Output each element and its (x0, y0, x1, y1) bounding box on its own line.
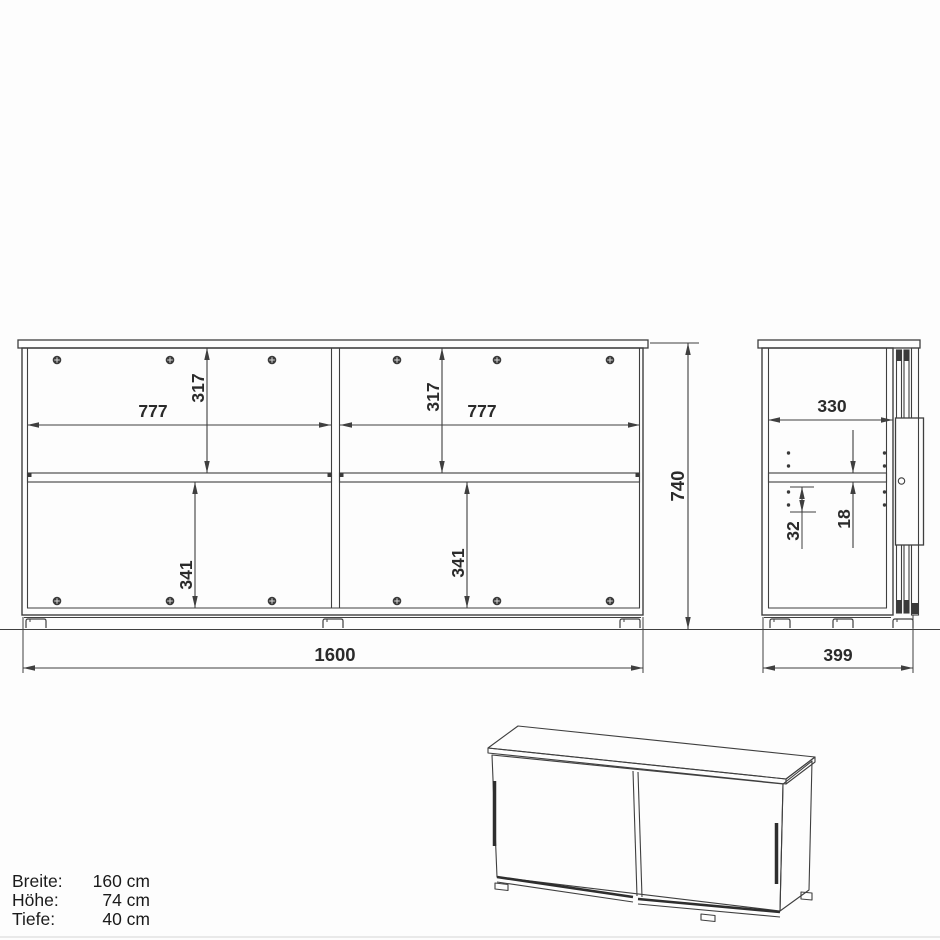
front-view (18, 340, 648, 628)
front-top-panel (18, 340, 648, 348)
screw-head-icon (393, 597, 402, 606)
door-overlap-edge (638, 772, 642, 897)
screw-head-icon (493, 356, 502, 365)
dimension-label-hole-pitch: 32 (783, 521, 803, 541)
screw-head-icon (606, 597, 615, 606)
foot-glide (620, 619, 640, 628)
top-panel-front-edge (488, 748, 786, 784)
spec-row-width: Breite: 160 cm (12, 872, 150, 891)
foot-glide (495, 883, 508, 891)
spec-row-height: Höhe: 74 cm (12, 891, 150, 910)
door-track-top (904, 350, 909, 361)
side-view (758, 340, 924, 628)
dimension-label-shelf-thickness: 18 (834, 509, 854, 529)
dimension-label-overall-height: 740 (667, 471, 688, 502)
screw-head-icon (53, 356, 62, 365)
spec-value: 74 cm (86, 891, 150, 910)
shelf-connector (340, 473, 344, 477)
front-shelf-left (28, 473, 332, 482)
dimension-label-lower-height-right: 341 (448, 548, 468, 577)
screw-head-icon (53, 597, 62, 606)
spec-label: Höhe: (12, 891, 86, 910)
dimension-label-upper-height-right: 317 (423, 382, 443, 411)
dimension-label-inner-depth: 330 (817, 396, 846, 416)
spec-label: Breite: (12, 872, 86, 891)
spec-label: Tiefe: (12, 910, 86, 929)
dimension-label-inner-width-right: 777 (467, 401, 496, 421)
dimension-label-inner-width-left: 777 (138, 401, 167, 421)
screw-head-icon (166, 597, 175, 606)
door-track-bottom (897, 600, 902, 613)
foot-glide (833, 619, 853, 628)
dimension-label-lower-height-left: 341 (176, 560, 196, 589)
door-track-bottom (912, 603, 919, 614)
dimension-label-upper-height-left: 317 (188, 373, 208, 402)
screw-head-icon (493, 597, 502, 606)
perspective-view (488, 726, 815, 922)
foot-glide (323, 619, 343, 628)
shelf-connector (636, 473, 640, 477)
page-divider-line (0, 936, 940, 938)
dimension-label-overall-depth: 399 (823, 645, 852, 665)
front-shelf-right (340, 473, 640, 482)
technical-drawing-canvas: 777 777 317 317 341 341 1600 740 330 32 (0, 0, 940, 940)
drawing-svg: 777 777 317 317 341 341 1600 740 330 32 (0, 0, 940, 940)
foot-glide (770, 619, 790, 628)
door-track-top (897, 350, 902, 361)
door-overlap-edge (633, 771, 637, 896)
left-door-bottom-rail (497, 877, 633, 897)
screw-head-icon (268, 597, 277, 606)
door-handle-plate (896, 418, 924, 545)
foot-glide (701, 914, 715, 922)
screw-head-icon (393, 356, 402, 365)
screw-head-icon (166, 356, 175, 365)
side-shelf (769, 473, 887, 482)
screw-head-icon (606, 356, 615, 365)
screw-head-icon (268, 356, 277, 365)
foot-glide (26, 619, 46, 628)
spec-value: 40 cm (86, 910, 150, 929)
shelf-connector (328, 473, 332, 477)
spec-value: 160 cm (86, 872, 150, 891)
side-top-panel (758, 340, 920, 348)
shelf-connector (28, 473, 32, 477)
specs-table: Breite: 160 cm Höhe: 74 cm Tiefe: 40 cm (12, 872, 150, 929)
foot-glide (801, 892, 812, 900)
dimension-label-overall-width: 1600 (314, 644, 355, 665)
foot-glide (893, 619, 913, 628)
spec-row-depth: Tiefe: 40 cm (12, 910, 150, 929)
door-track-bottom (904, 600, 909, 613)
